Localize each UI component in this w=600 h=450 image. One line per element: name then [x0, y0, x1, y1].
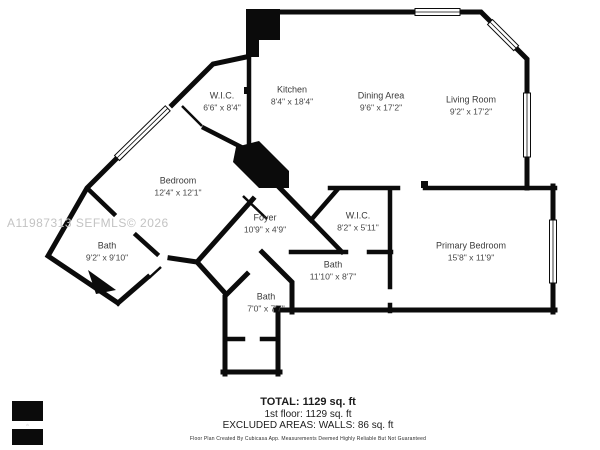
room-dims: 7'0" x 7'7": [247, 303, 285, 315]
room-name: Bedroom: [154, 176, 201, 188]
room-name: Primary Bedroom: [436, 241, 506, 253]
mls-watermark: A11987313 SEFMLS© 2026: [7, 216, 169, 230]
room-name: Living Room: [446, 95, 496, 107]
room-label-bath-primary: Bath 11'10" x 8'7": [310, 260, 357, 283]
room-label-living: Living Room 9'2" x 17'2": [446, 95, 496, 118]
exterior-walls: [48, 12, 555, 374]
room-name: Dining Area: [358, 91, 405, 103]
room-label-wic-small: W.I.C. 6'6" x 8'4": [203, 91, 241, 114]
summary-floor: 1st floor: 1129 sq. ft: [190, 409, 426, 420]
room-dims: 11'10" x 8'7": [310, 271, 357, 283]
summary-excluded: EXCLUDED AREAS: WALLS: 86 sq. ft: [190, 420, 426, 431]
logo-block-top: [12, 401, 43, 421]
room-dims: 9'6" x 17'2": [358, 102, 405, 114]
window-primary-east: [550, 220, 557, 283]
room-dims: 8'2" x 5'11": [337, 222, 379, 234]
room-label-foyer: Foyer 10'9" x 4'9": [244, 213, 286, 236]
window-top: [415, 9, 460, 16]
area-summary: TOTAL: 1129 sq. ft 1st floor: 1129 sq. f…: [190, 396, 426, 442]
room-dims: 12'4" x 12'1": [154, 187, 201, 199]
floor-plan-page: A11987313 SEFMLS© 2026: [0, 0, 600, 450]
summary-total: TOTAL: 1129 sq. ft: [190, 396, 426, 409]
room-label-bedroom: Bedroom 12'4" x 12'1": [154, 176, 201, 199]
room-label-dining: Dining Area 9'6" x 17'2": [358, 91, 405, 114]
logo-block-bottom: [12, 429, 43, 445]
room-name: Foyer: [244, 213, 286, 225]
logo-house-icon: ⌂: [12, 421, 43, 429]
room-name: Kitchen: [271, 85, 313, 97]
room-dims: 9'2" x 17'2": [446, 106, 496, 118]
window-bedroom-northwest: [115, 106, 171, 161]
room-dims: 15'8" x 11'9": [436, 252, 506, 264]
window-living-east: [524, 93, 531, 157]
summary-disclaimer: Floor Plan Created By Cubicasa App. Meas…: [190, 436, 426, 442]
room-label-primary-bedroom: Primary Bedroom 15'8" x 11'9": [436, 241, 506, 264]
room-dims: 10'9" x 4'9": [244, 224, 286, 236]
room-dims: 8'4" x 18'4": [271, 96, 313, 108]
room-name: W.I.C.: [203, 91, 241, 103]
cubicasa-logo: ⌂: [12, 401, 43, 445]
room-dims: 9'2" x 9'10": [86, 252, 128, 264]
window-corner-diagonal: [488, 20, 519, 51]
room-dims: 6'6" x 8'4": [203, 102, 241, 114]
room-name: Bath: [247, 292, 285, 304]
room-name: W.I.C.: [337, 211, 379, 223]
room-name: Bath: [86, 241, 128, 253]
room-name: Bath: [310, 260, 357, 272]
room-label-wic-primary: W.I.C. 8'2" x 5'11": [337, 211, 379, 234]
room-label-bath-left: Bath 9'2" x 9'10": [86, 241, 128, 264]
room-label-bath-bottom: Bath 7'0" x 7'7": [247, 292, 285, 315]
room-label-kitchen: Kitchen 8'4" x 18'4": [271, 85, 313, 108]
